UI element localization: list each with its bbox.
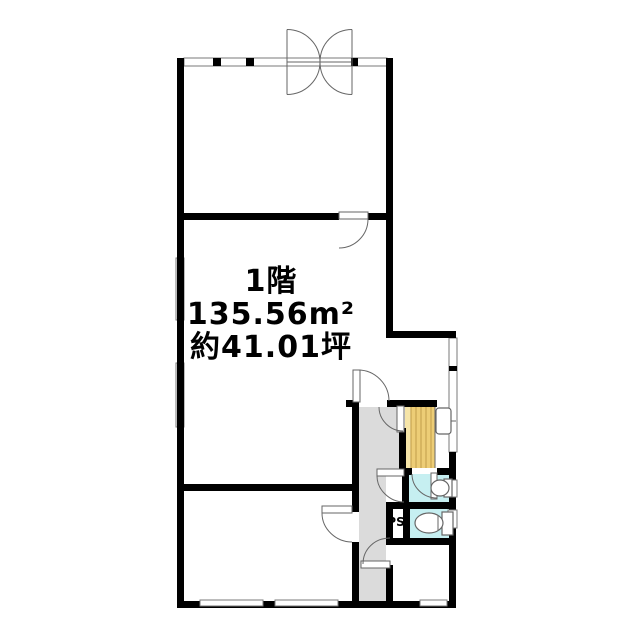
bottomleft-room-door (322, 506, 352, 542)
wall-toilet2-top (386, 502, 456, 509)
toilet1-basin-icon (431, 479, 452, 497)
floor-label: 1階 (245, 264, 298, 299)
wall-corridor-right-lower (386, 565, 393, 601)
wall-toilet1-left (402, 475, 409, 503)
toproom-door (339, 212, 368, 248)
tsubo-label: 約41.01坪 (190, 330, 352, 365)
outer-wall-left (177, 58, 184, 608)
pipe-space-label: PS (387, 515, 404, 529)
wall-toproom-left (184, 213, 339, 220)
wall-corner-topleft (177, 58, 184, 66)
wall-toilet2-bottom (386, 538, 456, 545)
corridor-floor-lower (359, 470, 386, 601)
windows (176, 58, 457, 452)
window-mullion-2 (246, 58, 254, 66)
outer-wall-step (386, 331, 456, 338)
wall-stairs-top (387, 400, 437, 407)
window-mullion-right (449, 366, 457, 371)
wall-toproom-right (368, 213, 393, 220)
floor-plan-page: 1階 135.56m² 約41.01坪 PS (0, 0, 640, 640)
floor-plan-svg: 1階 135.56m² 約41.01坪 PS (0, 0, 640, 640)
window-bottom-3 (420, 600, 447, 606)
window-bottom-2 (275, 600, 338, 606)
window-bottom-1 (200, 600, 263, 606)
corridor-entry-door (353, 370, 389, 402)
wall-stairs-left (399, 428, 406, 470)
wall-toilet1-top-right (437, 468, 456, 475)
window-right-band (449, 338, 457, 452)
window-mullion-1 (213, 58, 221, 66)
area-label: 135.56m² (187, 297, 355, 332)
wall-bottomleft-room (184, 484, 352, 491)
corridor-floor-upper (359, 407, 399, 470)
outer-wall-right-upper (386, 58, 393, 338)
toilet-icon (415, 512, 453, 535)
wall-corridor-left-lower (352, 542, 359, 601)
wall-corridor-left-upper (352, 402, 359, 512)
